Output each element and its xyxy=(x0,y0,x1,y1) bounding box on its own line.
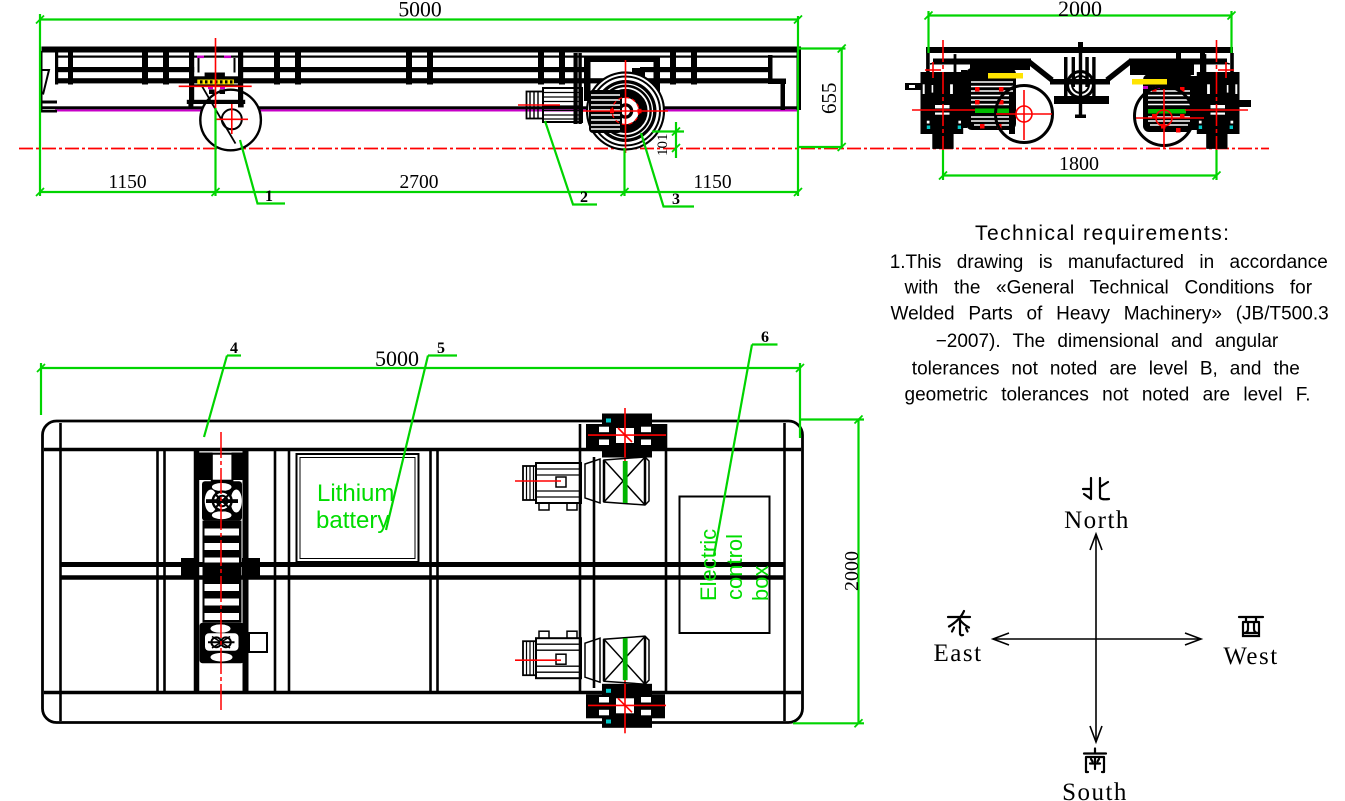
svg-text:Welded Parts of Heavy Machiner: Welded Parts of Heavy Machinery» (JB/T50… xyxy=(891,304,1329,325)
svg-text:101: 101 xyxy=(655,134,671,157)
svg-text:tolerances not noted are level: tolerances not noted are level B, and th… xyxy=(912,359,1300,380)
svg-text:geometric tolerances not noted: geometric tolerances not noted are level… xyxy=(905,385,1311,406)
svg-text:5000: 5000 xyxy=(398,0,442,22)
svg-text:5: 5 xyxy=(437,340,445,357)
svg-text:box: box xyxy=(748,566,773,601)
svg-text:1150: 1150 xyxy=(108,172,146,193)
svg-text:1150: 1150 xyxy=(693,172,731,193)
svg-text:Lithium: Lithium xyxy=(317,480,394,507)
svg-text:2000: 2000 xyxy=(1058,0,1102,21)
svg-text:1800: 1800 xyxy=(1059,153,1099,175)
svg-text:East: East xyxy=(933,640,982,667)
svg-text:2700: 2700 xyxy=(400,172,439,193)
svg-text:with the «General Technical Co: with the «General Technical Conditions f… xyxy=(904,278,1313,299)
svg-text:South: South xyxy=(1062,779,1128,801)
svg-text:1.This drawing is manufactured: 1.This drawing is manufactured in accord… xyxy=(890,252,1328,273)
svg-text:3: 3 xyxy=(672,191,680,208)
svg-text:2: 2 xyxy=(580,189,588,206)
svg-text:4: 4 xyxy=(230,340,238,357)
svg-text:battery: battery xyxy=(316,507,389,534)
svg-text:control: control xyxy=(722,534,747,600)
svg-text:North: North xyxy=(1064,507,1130,534)
svg-text:−2007). The dimensional and an: −2007). The dimensional and angular xyxy=(936,331,1279,352)
svg-text:1: 1 xyxy=(265,188,273,205)
svg-text:6: 6 xyxy=(761,329,769,346)
svg-text:West: West xyxy=(1223,643,1278,670)
svg-text:655: 655 xyxy=(817,83,841,115)
svg-text:Technical requirements:: Technical requirements: xyxy=(975,222,1229,245)
svg-text:2000: 2000 xyxy=(841,551,863,591)
svg-text:5000: 5000 xyxy=(375,346,419,371)
